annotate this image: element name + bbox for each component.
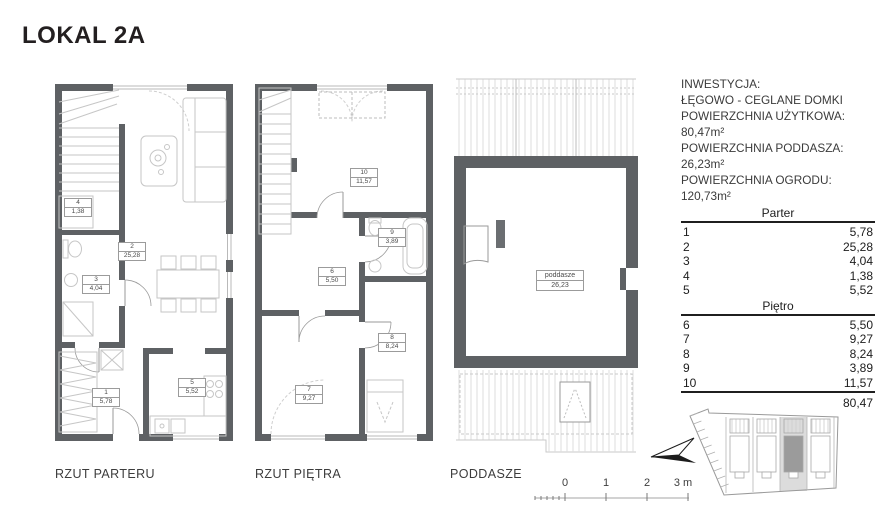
table-row: 79,27: [681, 332, 875, 347]
table-section-header: Parter: [681, 206, 875, 221]
info-line: 80,47m²: [681, 124, 875, 140]
table-row: 41,38: [681, 269, 875, 284]
table-row: 55,52: [681, 283, 875, 298]
room-number: 9: [379, 229, 405, 238]
sink: [65, 274, 78, 287]
room-label-10: 10 11,57: [350, 168, 378, 187]
room-label-7: 7 9,27: [295, 385, 323, 404]
investment-info: INWESTYCJA: ŁĘGOWO - CEGLANE DOMKI POWIE…: [681, 76, 875, 204]
table-row: 88,24: [681, 347, 875, 362]
pietro-furniture: [259, 88, 427, 432]
table-row: 65,50: [681, 318, 875, 333]
bed: [367, 380, 403, 432]
room-area: 25,28: [119, 252, 145, 260]
room-number: 5: [179, 379, 205, 388]
room-label-3: 3 4,04: [82, 275, 110, 294]
sofa: [183, 98, 226, 202]
table-row: 225,28: [681, 240, 875, 255]
parter-walls: [55, 84, 233, 441]
floor-plan-poddasze: poddasze 26,23: [450, 78, 642, 455]
floor-plan-sheet: LOKAL 2A: [0, 0, 877, 517]
caption-poddasze: PODDASZE: [450, 467, 522, 481]
skylight: [560, 382, 590, 422]
caption-parter: RZUT PARTERU: [55, 467, 155, 481]
room-label-1: 1 5,78: [92, 388, 120, 407]
table-row: 93,89: [681, 361, 875, 376]
toilet: [63, 240, 68, 258]
highlighted-unit: [784, 436, 803, 472]
floor-plan-pietro: 10 11,57 9 3,89 6 5,50 8 8,24 7 9,27: [255, 84, 433, 441]
room-label-4: 4 1,38: [64, 198, 92, 217]
poddasze-walls: [454, 156, 638, 368]
room-label-6: 6 5,50: [318, 267, 346, 286]
room-area: 4,04: [83, 285, 109, 293]
page-title: LOKAL 2A: [22, 22, 146, 50]
room-area: 11,57: [351, 178, 377, 186]
parter-drawing: [55, 84, 233, 441]
attic-hatch-door: [464, 226, 488, 264]
info-line: ŁĘGOWO - CEGLANE DOMKI: [681, 92, 875, 108]
scale-tick-label: 2: [644, 477, 650, 489]
room-number: 4: [65, 199, 91, 208]
poddasze-drawing: [450, 78, 642, 455]
info-line: POWIERZCHNIA UŻYTKOWA:: [681, 108, 875, 124]
room-label-2: 2 25,28: [118, 242, 146, 261]
info-line: POWIERZCHNIA PODDASZA:: [681, 140, 875, 156]
pietro-walls: [255, 84, 433, 441]
site-plan-thumbnail: [686, 400, 876, 515]
room-area: 26,23: [537, 281, 583, 290]
retaining-hatch: [690, 413, 729, 487]
room-number: 10: [351, 169, 377, 178]
info-line: POWIERZCHNIA OGRODU:: [681, 172, 875, 188]
room-label-9: 9 3,89: [378, 228, 406, 247]
roof-hatch-bottom: [456, 370, 636, 452]
room-area: 3,89: [379, 238, 405, 246]
area-table: Parter 15,78 225,28 34,04 41,38 55,52 Pi…: [681, 206, 875, 411]
room-number: 7: [296, 386, 322, 395]
room-label-poddasze: poddasze 26,23: [536, 270, 584, 291]
room-area: 8,24: [379, 343, 405, 351]
table-row: 1011,57: [681, 376, 875, 391]
room-number: 2: [119, 243, 145, 252]
room-number: 3: [83, 276, 109, 285]
chimney: [496, 220, 505, 248]
pietro-drawing: [255, 84, 433, 441]
info-line: 26,23m²: [681, 156, 875, 172]
stairs: [59, 128, 119, 191]
room-label-8: 8 8,24: [378, 333, 406, 352]
roof-hatch-top: [456, 79, 636, 156]
scale-tick-label: 1: [603, 477, 609, 489]
table-row: 15,78: [681, 225, 875, 240]
info-line: 120,73m²: [681, 188, 875, 204]
info-line: INWESTYCJA:: [681, 76, 875, 92]
table-row: 34,04: [681, 254, 875, 269]
scale-bar: 0 1 2 3 m: [534, 472, 694, 506]
wall-notch: [626, 268, 642, 290]
room-name: poddasze: [537, 271, 583, 281]
dining-table: [157, 270, 219, 298]
room-label-5: 5 5,52: [178, 378, 206, 397]
room-area: 5,52: [179, 388, 205, 396]
room-area: 9,27: [296, 395, 322, 403]
floor-plan-parter: 4 1,38 2 25,28 3 4,04 1 5,78 5 5,52: [55, 84, 233, 441]
room-number: 1: [93, 389, 119, 398]
room-area: 5,78: [93, 398, 119, 406]
table-section-header: Piętro: [681, 299, 875, 314]
sink: [369, 260, 381, 272]
room-number: 8: [379, 334, 405, 343]
pietro-openings: [271, 84, 417, 441]
room-area: 1,38: [65, 208, 91, 216]
room-number: 6: [319, 268, 345, 277]
caption-pietro: RZUT PIĘTRA: [255, 467, 341, 481]
scale-tick-label: 0: [562, 477, 568, 489]
room-area: 5,50: [319, 277, 345, 285]
